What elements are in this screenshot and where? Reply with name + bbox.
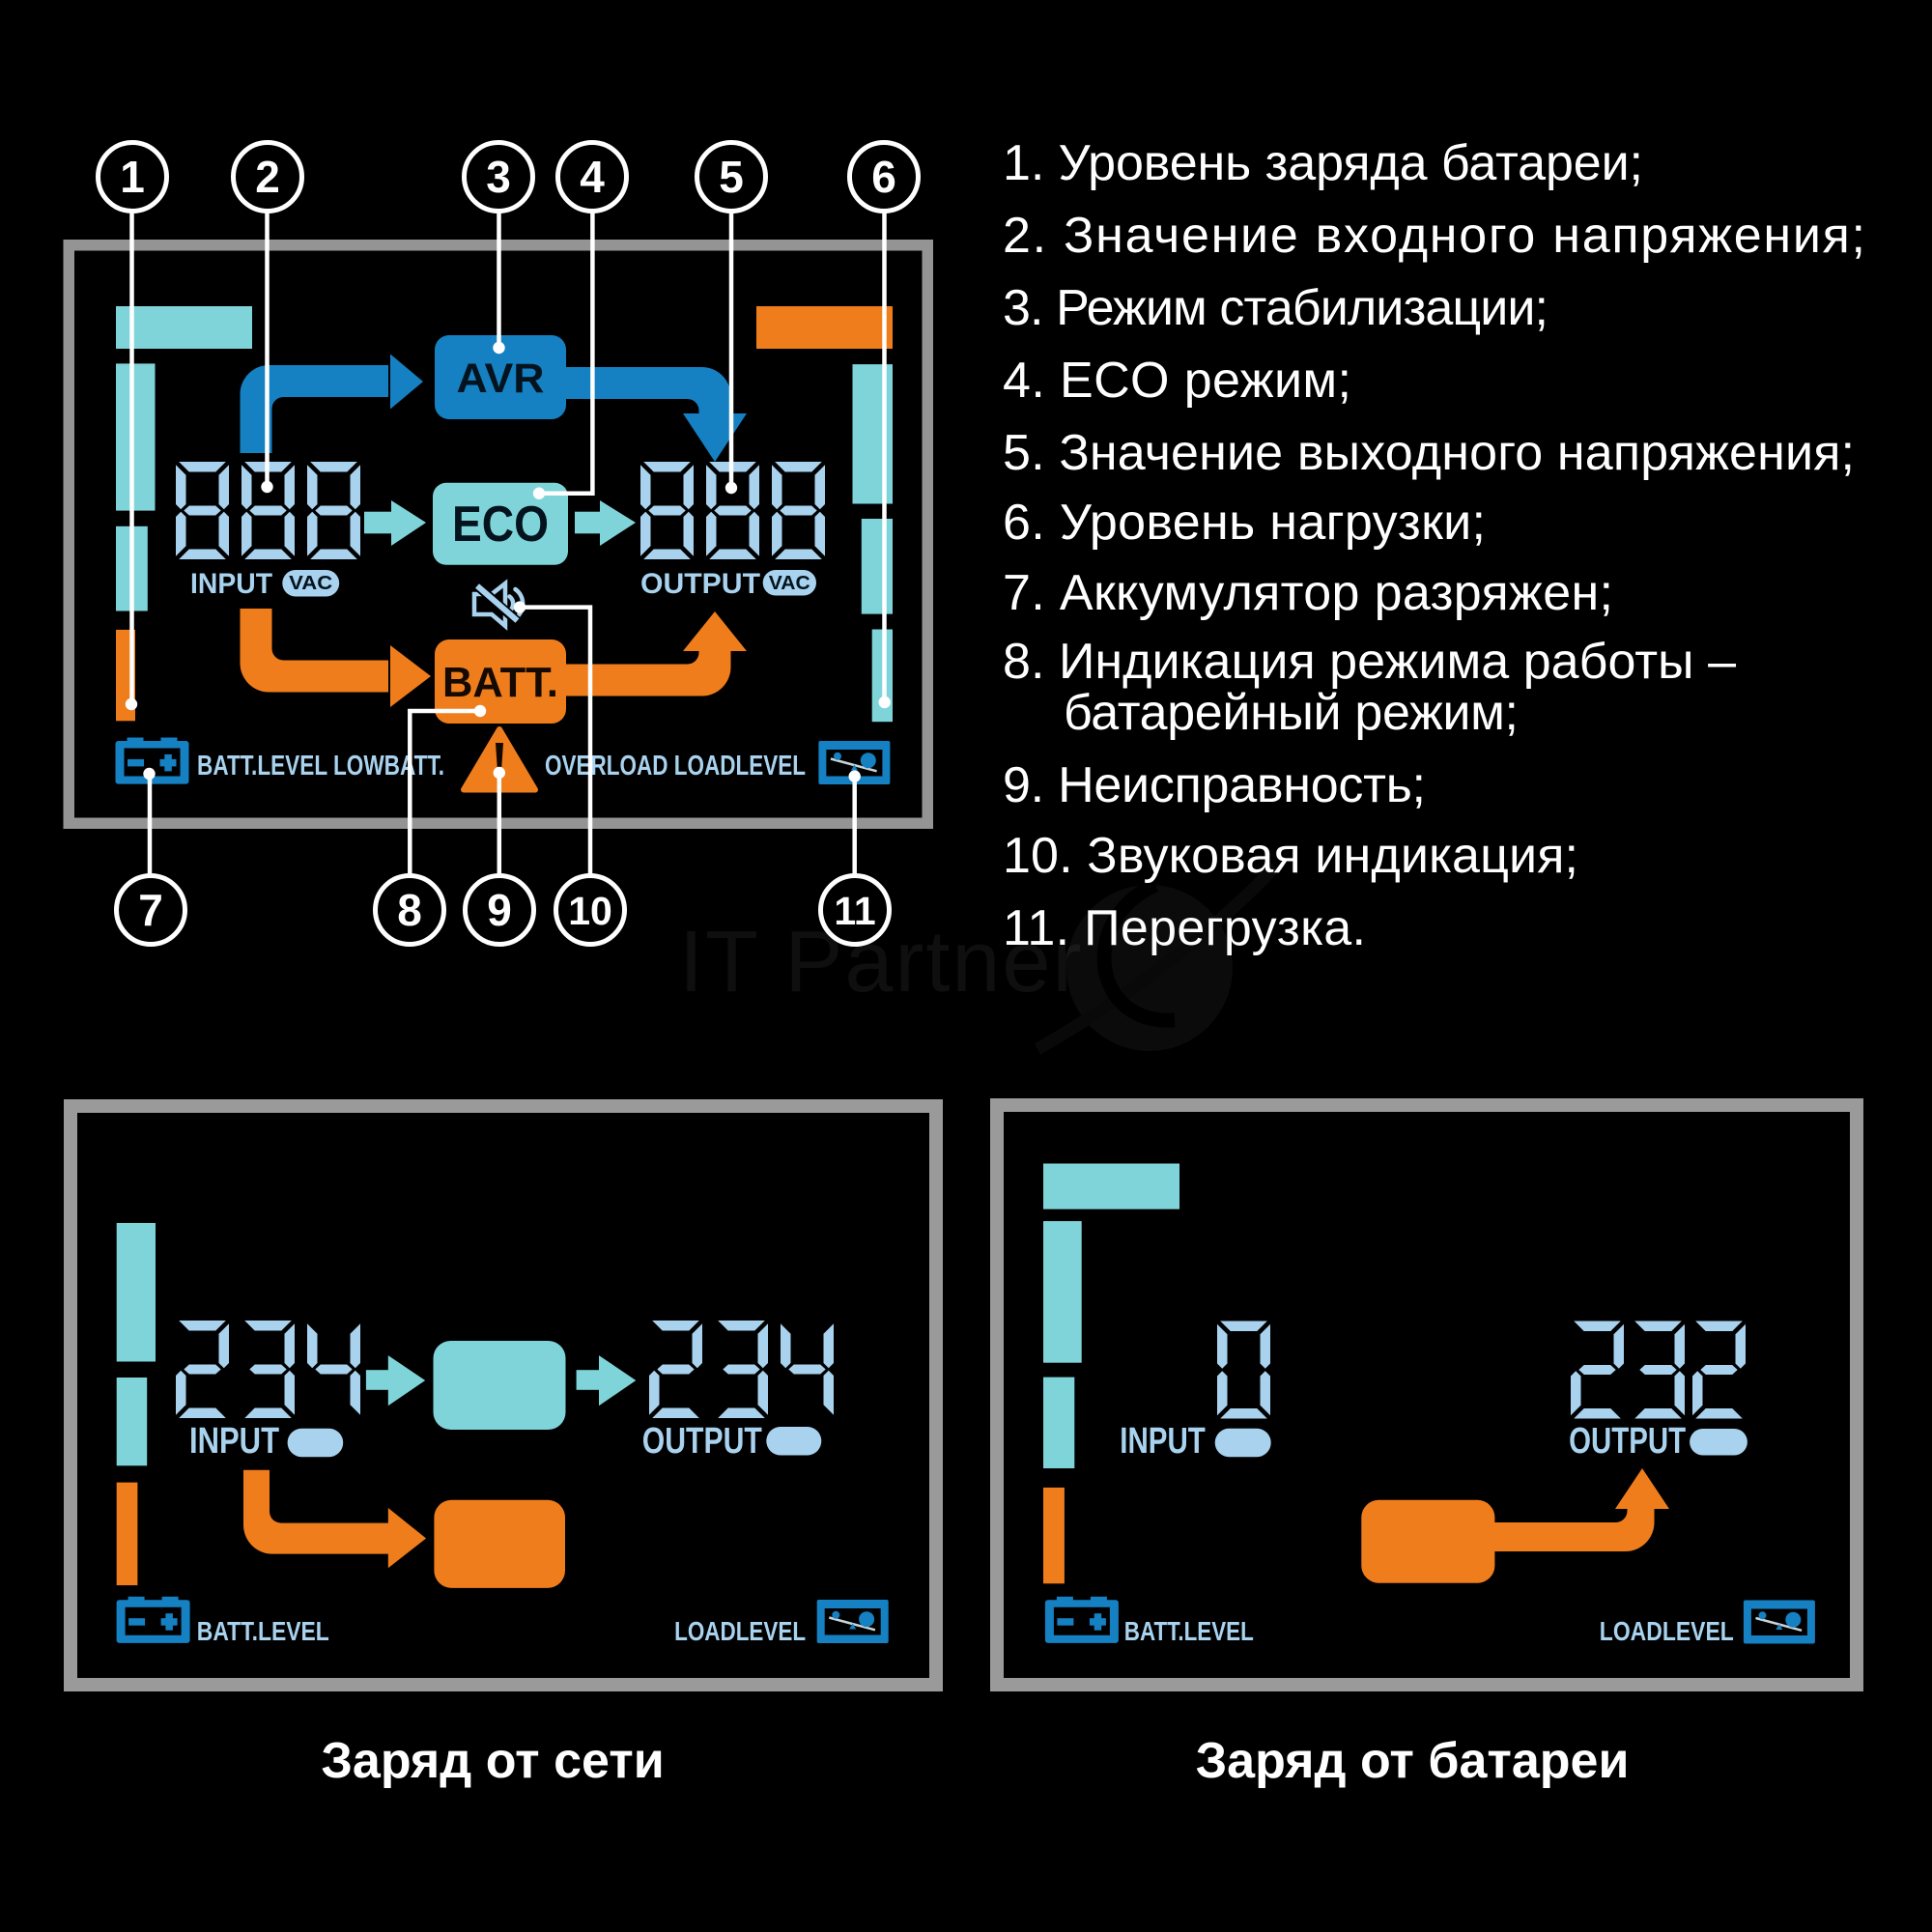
svg-text:7: 7 xyxy=(138,885,163,935)
svg-text:1: 1 xyxy=(120,152,145,202)
svg-text:BATT.LEVEL LOWBATT.: BATT.LEVEL LOWBATT. xyxy=(197,751,444,781)
svg-text:11. Перегрузка.: 11. Перегрузка. xyxy=(1003,900,1366,956)
svg-text:5. Значение выходного напряжен: 5. Значение выходного напряжения; xyxy=(1003,425,1855,481)
svg-text:6: 6 xyxy=(871,152,896,202)
svg-text:LOADLEVEL: LOADLEVEL xyxy=(674,1616,806,1646)
svg-text:9: 9 xyxy=(487,885,512,935)
svg-text:4: 4 xyxy=(580,152,605,202)
svg-text:7. Аккумулятор разряжен;: 7. Аккумулятор разряжен; xyxy=(1003,565,1613,621)
svg-text:батарейный режим;: батарейный режим; xyxy=(1064,685,1519,741)
svg-text:10. Звуковая индикация;: 10. Звуковая индикация; xyxy=(1003,828,1578,884)
svg-text:BATT.LEVEL: BATT.LEVEL xyxy=(197,1616,329,1646)
svg-text:BATT.LEVEL: BATT.LEVEL xyxy=(1124,1616,1254,1646)
svg-text:10: 10 xyxy=(568,889,612,933)
svg-text:VAC: VAC xyxy=(769,573,810,594)
svg-text:2: 2 xyxy=(255,152,280,202)
svg-text:INPUT: INPUT xyxy=(190,568,272,600)
svg-text:5: 5 xyxy=(719,152,744,202)
svg-text:OUTPUT: OUTPUT xyxy=(640,568,760,600)
svg-text:3. Режим стабилизации;: 3. Режим стабилизации; xyxy=(1003,280,1548,336)
svg-text:8: 8 xyxy=(397,885,422,935)
svg-text:Заряд от батареи: Заряд от батареи xyxy=(1196,1733,1630,1789)
svg-text:OUTPUT: OUTPUT xyxy=(642,1421,762,1462)
svg-text:9. Неисправность;: 9. Неисправность; xyxy=(1003,757,1426,813)
svg-text:4. ECO режим;: 4. ECO режим; xyxy=(1003,353,1351,409)
svg-text:OUTPUT: OUTPUT xyxy=(1569,1421,1686,1462)
svg-text:LOADLEVEL: LOADLEVEL xyxy=(1600,1616,1734,1646)
svg-text:2. Значение входного напряжени: 2. Значение входного напряжения; xyxy=(1003,208,1865,264)
svg-text:AVR: AVR xyxy=(457,355,545,402)
svg-text:BATT.: BATT. xyxy=(442,659,558,706)
svg-text:6. Уровень нагрузки;: 6. Уровень нагрузки; xyxy=(1003,495,1486,551)
svg-text:Заряд от сети: Заряд от сети xyxy=(321,1733,664,1789)
svg-text:3: 3 xyxy=(486,152,511,202)
svg-text:INPUT: INPUT xyxy=(1120,1421,1206,1462)
svg-text:1. Уровень заряда батареи;: 1. Уровень заряда батареи; xyxy=(1003,135,1643,191)
svg-text:ECO: ECO xyxy=(452,497,549,553)
svg-text:OVERLOAD LOADLEVEL: OVERLOAD LOADLEVEL xyxy=(545,751,806,781)
svg-text:11: 11 xyxy=(834,889,875,933)
svg-text:VAC: VAC xyxy=(289,573,332,594)
svg-text:INPUT: INPUT xyxy=(189,1421,279,1462)
svg-text:8. Индикация режима работы –: 8. Индикация режима работы – xyxy=(1003,634,1736,690)
